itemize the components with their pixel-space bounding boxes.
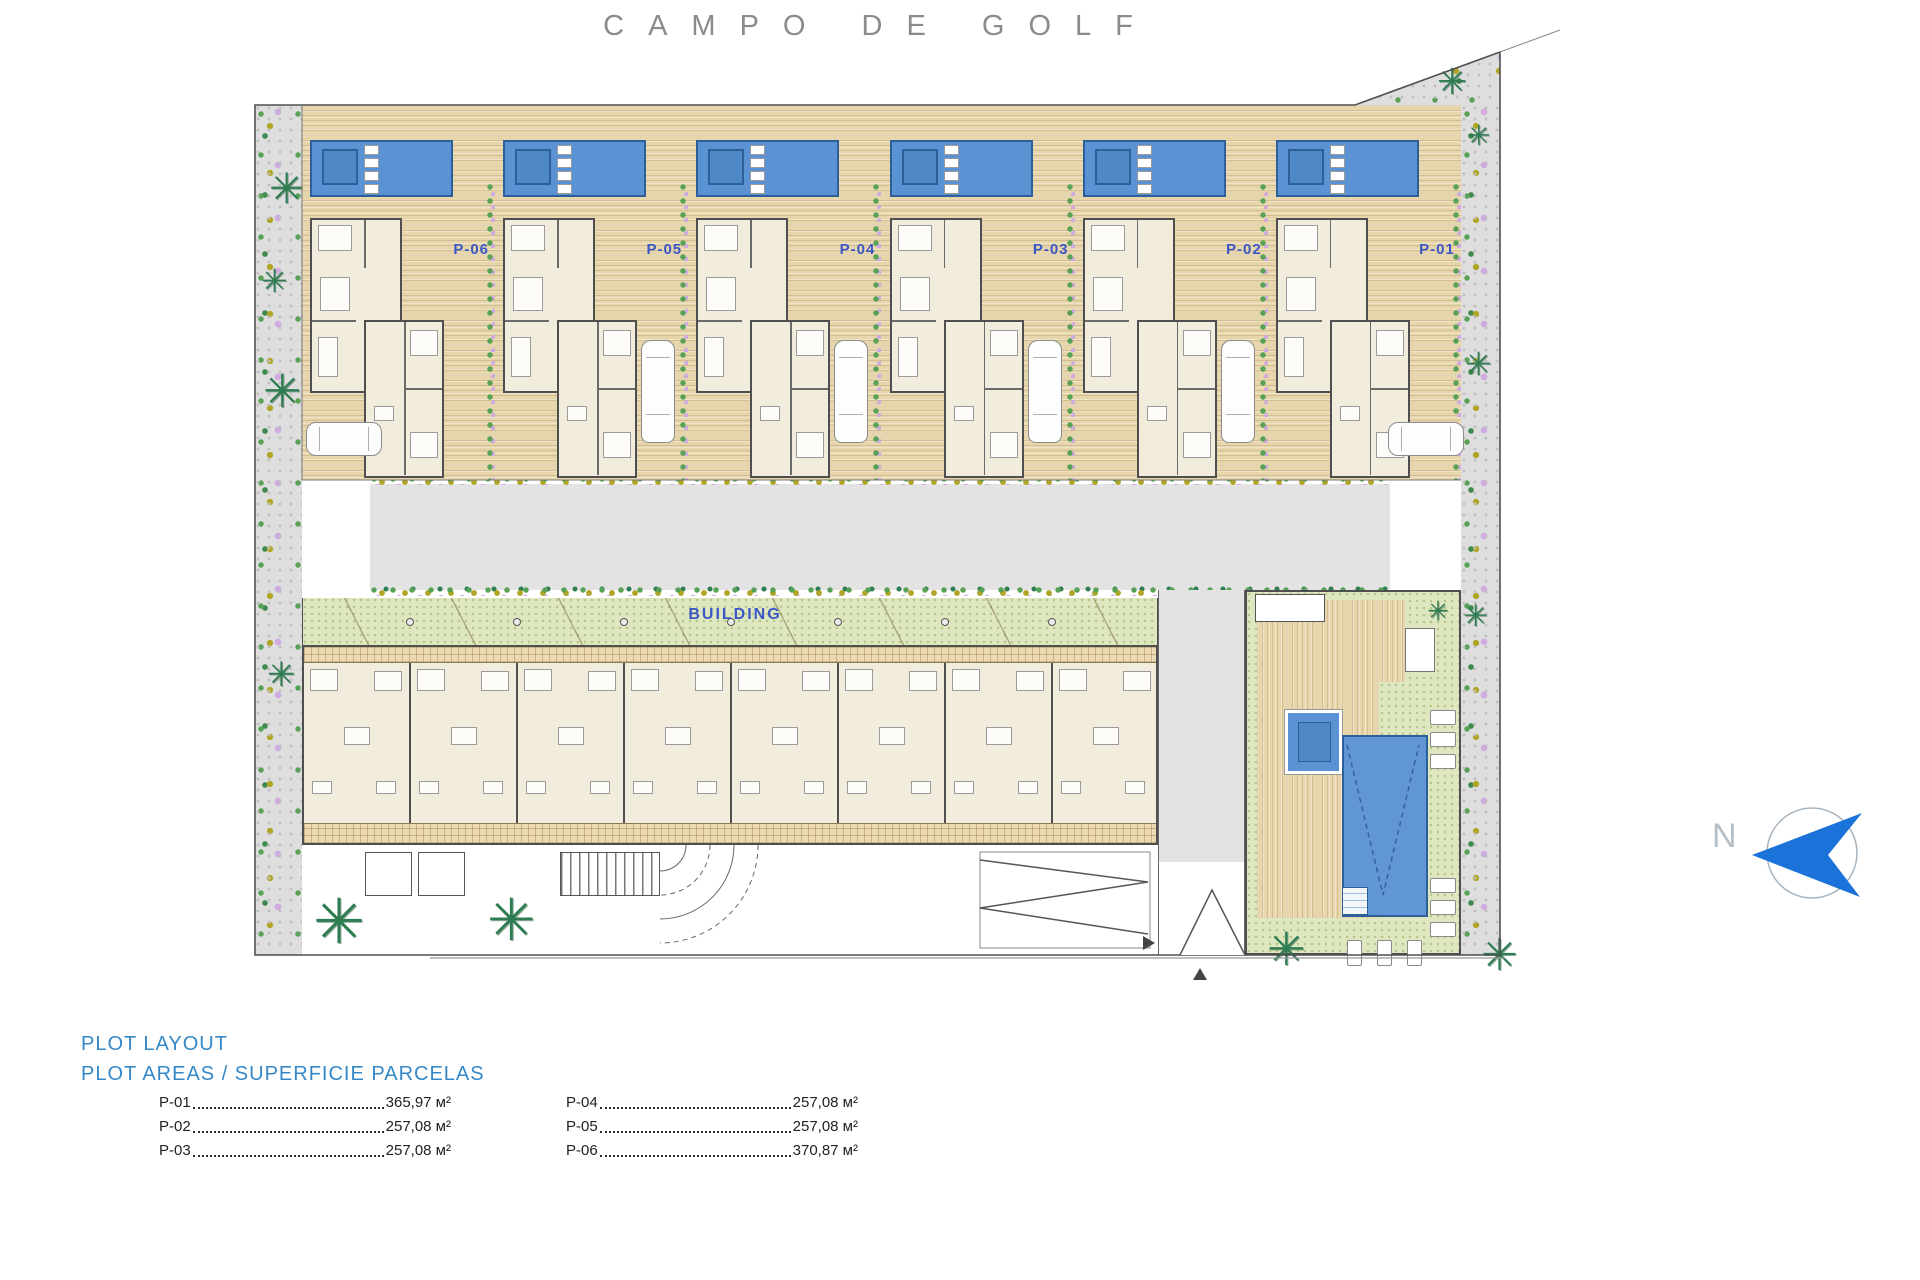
interior-wall xyxy=(790,388,828,390)
furniture xyxy=(954,406,974,421)
furniture xyxy=(796,330,824,356)
furniture xyxy=(898,225,932,251)
kids-pool xyxy=(1285,710,1342,774)
furniture xyxy=(954,781,974,794)
plot-pool xyxy=(890,140,1033,197)
furniture xyxy=(772,727,798,745)
furniture xyxy=(738,669,766,691)
sun-lounger xyxy=(1430,900,1456,915)
furniture xyxy=(879,727,905,745)
main-pool xyxy=(1342,735,1428,917)
plot-areas-column-1: P-01 365,97 м² P-02 257,08 м² P-03 257,0… xyxy=(159,1094,451,1166)
entrance-path xyxy=(1158,862,1245,955)
furniture xyxy=(318,337,338,377)
interior-wall xyxy=(1085,320,1129,322)
spa xyxy=(515,149,551,185)
furniture xyxy=(1093,277,1123,311)
furniture xyxy=(511,337,531,377)
furniture xyxy=(419,781,439,794)
furniture xyxy=(760,406,780,421)
building-label: BUILDING xyxy=(650,606,820,624)
palm-tree-icon: ✳ xyxy=(1427,598,1449,624)
apartment-unit xyxy=(1053,663,1160,823)
furniture xyxy=(796,432,824,458)
skimmer xyxy=(557,158,572,168)
furniture xyxy=(1183,432,1211,458)
skimmer xyxy=(364,171,379,181)
palm-tree-icon: ✳ xyxy=(267,658,296,692)
sun-lounger xyxy=(1430,878,1456,893)
spa xyxy=(1288,149,1324,185)
palm-tree-icon: ✳ xyxy=(1437,64,1467,100)
plot-pool xyxy=(1083,140,1226,197)
plot-area-value: 257,08 м² xyxy=(386,1118,451,1135)
furniture xyxy=(631,669,659,691)
plot-label: P-02 xyxy=(1226,241,1262,258)
furniture xyxy=(588,671,616,691)
furniture xyxy=(697,781,717,794)
skimmer xyxy=(750,145,765,155)
service-room xyxy=(418,852,465,896)
plot-area-value: 257,08 м² xyxy=(793,1118,858,1135)
plot-label: P-05 xyxy=(646,241,682,258)
furniture xyxy=(704,225,738,251)
interior-wall xyxy=(984,388,1022,390)
plot-pool xyxy=(696,140,839,197)
hedge-divider xyxy=(679,183,688,480)
plot-area-value: 257,08 м² xyxy=(793,1094,858,1111)
car xyxy=(641,340,675,443)
plot-area-value: 365,97 м² xyxy=(386,1094,451,1111)
interior-wall xyxy=(1370,322,1372,475)
terrace-cell xyxy=(945,598,1052,645)
furniture xyxy=(695,671,723,691)
interior-wall xyxy=(1330,220,1332,268)
dotted-leader xyxy=(193,1155,384,1157)
apartment-unit xyxy=(946,663,1053,823)
apartment-unit xyxy=(304,663,411,823)
furniture xyxy=(344,727,370,745)
plot-area-row: P-01 365,97 м² xyxy=(159,1094,451,1111)
apartment-building xyxy=(302,645,1158,845)
interior-wall xyxy=(597,322,599,475)
palm-tree-icon: ✳ xyxy=(263,368,302,414)
furniture xyxy=(1183,330,1211,356)
furniture xyxy=(1093,727,1119,745)
furniture xyxy=(526,781,546,794)
dotted-leader xyxy=(193,1131,384,1133)
north-arrow-shape xyxy=(1752,813,1862,897)
skimmer xyxy=(557,184,572,194)
car xyxy=(1221,340,1255,443)
palm-tree-icon: ✳ xyxy=(1481,934,1518,978)
palm-tree-icon: ✳ xyxy=(1267,926,1306,972)
furniture xyxy=(847,781,867,794)
plot-pool xyxy=(1276,140,1419,197)
interior-wall xyxy=(1177,388,1215,390)
furniture xyxy=(665,727,691,745)
furniture xyxy=(1340,406,1360,421)
kids-pool-inner xyxy=(1298,722,1331,762)
furniture xyxy=(318,225,352,251)
dotted-leader xyxy=(193,1107,384,1109)
terrace-marker xyxy=(834,618,842,626)
interior-wall xyxy=(1370,388,1408,390)
side-path xyxy=(1158,590,1245,862)
furniture xyxy=(1016,671,1044,691)
furniture xyxy=(451,727,477,745)
interior-wall xyxy=(404,322,406,475)
furniture xyxy=(1376,330,1404,356)
plot-area-value: 370,87 м² xyxy=(793,1142,858,1159)
terrace-marker xyxy=(406,618,414,626)
plot-area-row: P-04 257,08 м² xyxy=(566,1094,858,1111)
plot-label: P-03 xyxy=(1033,241,1069,258)
terrace-cell xyxy=(838,598,945,645)
service-room xyxy=(365,852,412,896)
furniture xyxy=(1123,671,1151,691)
furniture xyxy=(911,781,931,794)
house-footprint-wing xyxy=(557,320,637,478)
skimmer xyxy=(1330,158,1345,168)
interior-wall xyxy=(505,320,549,322)
plot-pool xyxy=(503,140,646,197)
interior-wall xyxy=(1278,320,1322,322)
furniture xyxy=(990,330,1018,356)
furniture xyxy=(1284,225,1318,251)
ramp-zigzag xyxy=(980,852,1150,948)
skimmer xyxy=(364,158,379,168)
sun-lounger xyxy=(1407,940,1422,966)
furniture xyxy=(524,669,552,691)
interior-wall xyxy=(944,220,946,268)
furniture xyxy=(417,669,445,691)
furniture xyxy=(481,671,509,691)
furniture xyxy=(1147,406,1167,421)
furniture xyxy=(410,432,438,458)
plot-area-row: P-06 370,87 м² xyxy=(566,1142,858,1159)
furniture xyxy=(740,781,760,794)
dotted-leader xyxy=(600,1131,791,1133)
furniture xyxy=(374,406,394,421)
apartment-unit xyxy=(411,663,518,823)
interior-wall xyxy=(790,322,792,475)
car xyxy=(1388,422,1464,456)
dotted-leader xyxy=(600,1155,791,1157)
terrace-cell xyxy=(410,598,517,645)
furniture xyxy=(410,330,438,356)
furniture xyxy=(1125,781,1145,794)
apartment-unit xyxy=(625,663,732,823)
plan-sheet: CAMPO DE GOLF BUILDING xyxy=(0,0,1920,1280)
terrace-cell xyxy=(517,598,624,645)
terrace-marker xyxy=(620,618,628,626)
plot-area-plot: P-06 xyxy=(566,1142,598,1159)
access-road xyxy=(370,484,1390,590)
apartment-unit xyxy=(732,663,839,823)
furniture xyxy=(376,781,396,794)
plot-area-plot: P-03 xyxy=(159,1142,191,1159)
sun-lounger xyxy=(1430,710,1456,725)
palm-tree-icon: ✳ xyxy=(269,168,304,210)
villa-plot-p-02: P-02 xyxy=(1075,105,1268,480)
plot-label: P-01 xyxy=(1419,241,1455,258)
furniture xyxy=(1018,781,1038,794)
furniture xyxy=(1091,337,1111,377)
palm-tree-icon: ✳ xyxy=(313,892,365,954)
furniture xyxy=(909,671,937,691)
legend-subtitle: PLOT AREAS / SUPERFICIE PARCELAS xyxy=(81,1063,485,1086)
terrace-cell xyxy=(303,598,410,645)
furniture xyxy=(513,277,543,311)
furniture xyxy=(1286,277,1316,311)
terrace-marker xyxy=(941,618,949,626)
hedge-divider xyxy=(1259,183,1268,480)
sun-lounger xyxy=(1377,940,1392,966)
furniture xyxy=(310,669,338,691)
dotted-leader xyxy=(600,1107,791,1109)
furniture xyxy=(320,277,350,311)
furniture xyxy=(1059,669,1087,691)
furniture xyxy=(511,225,545,251)
site-plan: BUILDING xyxy=(255,50,1500,955)
furniture xyxy=(1284,337,1304,377)
compass-icon xyxy=(1730,795,1880,910)
sun-lounger xyxy=(1430,922,1456,937)
villa-plot-p-05: P-05 xyxy=(495,105,688,480)
skimmer xyxy=(1330,171,1345,181)
terrace-cell xyxy=(1052,598,1159,645)
palm-tree-icon: ✳ xyxy=(261,265,288,297)
interior-wall xyxy=(312,320,356,322)
house-footprint-wing xyxy=(944,320,1024,478)
skimmer xyxy=(557,171,572,181)
pool-steps xyxy=(1342,887,1368,915)
furniture xyxy=(1091,225,1125,251)
skimmer xyxy=(1137,145,1152,155)
furniture xyxy=(898,337,918,377)
furniture xyxy=(590,781,610,794)
furniture xyxy=(603,330,631,356)
terrace-marker xyxy=(513,618,521,626)
interior-wall xyxy=(404,388,442,390)
palm-tree-icon: ✳ xyxy=(1463,602,1488,632)
palm-tree-icon: ✳ xyxy=(1467,122,1490,150)
villa-plot-p-03: P-03 xyxy=(882,105,1075,480)
plot-label: P-06 xyxy=(453,241,489,258)
interior-wall xyxy=(1137,220,1139,268)
garden-strip-right xyxy=(1461,105,1500,955)
skimmer xyxy=(557,145,572,155)
car xyxy=(1028,340,1062,443)
interior-wall xyxy=(984,322,986,475)
interior-wall xyxy=(698,320,742,322)
plot-area-row: P-05 257,08 м² xyxy=(566,1118,858,1135)
plot-pool xyxy=(310,140,453,197)
legend-title: PLOT LAYOUT xyxy=(81,1033,228,1056)
terrace-marker xyxy=(1048,618,1056,626)
skimmer xyxy=(944,171,959,181)
direction-triangle-right xyxy=(1143,936,1155,950)
boundary-extension-line xyxy=(1500,30,1560,52)
plot-label: P-04 xyxy=(840,241,876,258)
skimmer xyxy=(750,184,765,194)
car xyxy=(306,422,382,456)
furniture xyxy=(374,671,402,691)
pool-house xyxy=(1255,594,1325,622)
interior-wall xyxy=(750,220,752,268)
sun-lounger xyxy=(1430,754,1456,769)
furniture xyxy=(845,669,873,691)
skimmer xyxy=(944,184,959,194)
interior-wall xyxy=(597,388,635,390)
planter xyxy=(1405,628,1435,672)
plot-area-plot: P-05 xyxy=(566,1118,598,1135)
car xyxy=(834,340,868,443)
interior-wall xyxy=(557,220,559,268)
villa-plot-p-04: P-04 xyxy=(688,105,881,480)
apartment-unit xyxy=(518,663,625,823)
furniture xyxy=(802,671,830,691)
spa xyxy=(902,149,938,185)
plot-area-row: P-03 257,08 м² xyxy=(159,1142,451,1159)
plot-area-row: P-02 257,08 м² xyxy=(159,1118,451,1135)
house-footprint-wing xyxy=(1137,320,1217,478)
skimmer xyxy=(364,184,379,194)
furniture xyxy=(804,781,824,794)
house-footprint-wing xyxy=(750,320,830,478)
sun-lounger xyxy=(1430,732,1456,747)
spa xyxy=(708,149,744,185)
furniture xyxy=(986,727,1012,745)
furniture xyxy=(952,669,980,691)
furniture xyxy=(312,781,332,794)
garden-strip-left xyxy=(255,105,302,955)
plot-area-plot: P-02 xyxy=(159,1118,191,1135)
skimmer xyxy=(1330,145,1345,155)
spa xyxy=(322,149,358,185)
skimmer xyxy=(364,145,379,155)
skimmer xyxy=(1137,171,1152,181)
plot-areas-column-2: P-04 257,08 м² P-05 257,08 м² P-06 370,8… xyxy=(566,1094,858,1166)
furniture xyxy=(558,727,584,745)
furniture xyxy=(603,432,631,458)
skimmer xyxy=(750,171,765,181)
plot-area-plot: P-01 xyxy=(159,1094,191,1111)
interior-wall xyxy=(364,220,366,268)
skimmer xyxy=(1137,184,1152,194)
interior-wall xyxy=(1177,322,1179,475)
skimmer xyxy=(944,145,959,155)
garden-strip-topright xyxy=(1355,50,1500,105)
communal-pool-area xyxy=(1245,590,1461,955)
plot-area-value: 257,08 м² xyxy=(386,1142,451,1159)
skimmer xyxy=(750,158,765,168)
north-indicator: N xyxy=(1712,795,1882,910)
sun-lounger xyxy=(1347,940,1362,966)
furniture xyxy=(990,432,1018,458)
skimmer xyxy=(1137,158,1152,168)
furniture xyxy=(704,337,724,377)
hedge-divider xyxy=(872,183,881,480)
building-roof-strip xyxy=(304,647,1156,663)
palm-tree-icon: ✳ xyxy=(487,892,536,950)
furniture xyxy=(1061,781,1081,794)
furniture xyxy=(567,406,587,421)
apartment-unit xyxy=(839,663,946,823)
furniture xyxy=(706,277,736,311)
hedge-divider xyxy=(486,183,495,480)
plot-area-plot: P-04 xyxy=(566,1094,598,1111)
stairs xyxy=(560,852,660,896)
direction-triangle-up xyxy=(1193,968,1207,980)
furniture xyxy=(633,781,653,794)
skimmer xyxy=(1330,184,1345,194)
spa xyxy=(1095,149,1131,185)
page-title: CAMPO DE GOLF xyxy=(520,10,1240,43)
furniture xyxy=(483,781,503,794)
palm-tree-icon: ✳ xyxy=(1465,348,1492,380)
hedge-divider xyxy=(1066,183,1075,480)
building-terrace-strip xyxy=(304,823,1156,843)
interior-wall xyxy=(892,320,936,322)
furniture xyxy=(900,277,930,311)
skimmer xyxy=(944,158,959,168)
entrance-arcs xyxy=(660,845,758,943)
